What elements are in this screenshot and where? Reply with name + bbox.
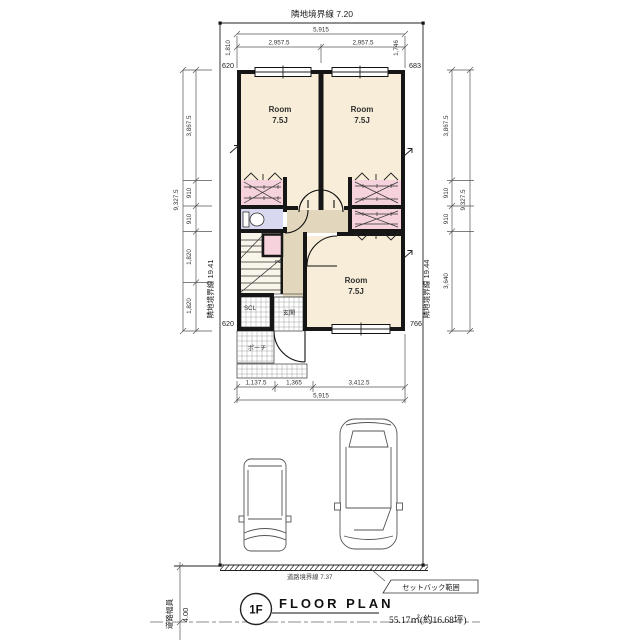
setback-label: セットバック範囲 [402,583,460,592]
dim-bottom-seg3: 3,412.5 [348,380,370,387]
porch-label: ポーチ [248,344,267,352]
road-boundary: 道路境界線 7.37 セットバック範囲 [174,565,478,593]
floor-tag: 1F [249,605,262,617]
dim-right-seg4: 3,640 [443,273,450,289]
toilet-fixture [243,212,264,227]
dim-right-seg1: 3,867.5 [443,115,450,137]
title-block: 1F FLOOR PLAN 55.17㎡(約16.68坪) [241,594,467,627]
dim-top-left-inset: 1,810 [225,40,232,56]
dim-right-total: 9,327.5 [460,189,467,211]
room2-name: Room [351,105,374,114]
entrance-label: 玄関 [283,309,295,317]
dim-bottom-seg1: 1,137.5 [245,380,267,387]
dimensions-left: 9,327.5 3,867.5 910 910 1,820 1,820 620 [173,67,234,334]
dim-top-right-inset: 1,746 [393,40,400,56]
window-room2 [332,66,388,79]
dim-left-seg1: 3,867.5 [186,115,193,137]
dim-top-total: 5,915 [313,27,329,34]
room3-name: Room [345,276,368,285]
pipe-space-area [263,235,282,257]
room2-size: 7.5J [354,116,370,125]
floor-plan-drawing: 隣地境界線 7.20 隣地境界線 19.41 隣地境界線 19.44 5,915… [0,0,640,640]
road-width-value: 4.00 [181,608,190,623]
room1-name: Room [269,105,292,114]
boundary-top-label: 隣地境界線 7.20 [291,8,353,19]
pipe-space-label: PS [275,259,281,264]
car-small [239,459,291,551]
dim-left-seg3: 910 [186,213,193,224]
dim-top-right-half: 2,957.5 [352,40,374,47]
dimensions-right: 3,867.5 910 910 3,640 9,327.5 766 [410,67,474,334]
floor-plan-page: 隣地境界線 7.20 隣地境界線 19.41 隣地境界線 19.44 5,915… [0,0,640,640]
dim-left-seg2: 910 [186,187,193,198]
window-room1 [255,66,311,79]
dim-offset-620-top: 620 [222,61,234,70]
plan-area-value: 55.17㎡(約16.68坪) [389,614,467,626]
road-width-label: 道路幅員 [164,598,174,629]
dim-left-seg4: 1,820 [186,249,193,265]
dim-bottom-total: 5,915 [313,393,329,400]
corridor-area [283,233,303,297]
boundary-right-label: 隣地境界線 19.44 [421,259,431,318]
window-room3 [332,323,390,336]
plan-title: FLOOR PLAN [279,596,394,611]
dim-right-seg2: 910 [443,187,450,198]
boundary-left-label: 隣地境界線 19.41 [205,259,215,318]
dim-right-seg3: 910 [443,213,450,224]
dim-top-left-half: 2,957.5 [268,40,290,47]
road-boundary-label: 道路境界線 7.37 [287,572,333,581]
car-large [335,419,403,549]
dim-left-total: 9,327.5 [173,189,180,211]
dimensions-top: 5,915 2,957.5 2,957.5 1,810 1,746 620 68… [222,27,421,71]
dim-offset-620-bottom: 620 [222,319,234,328]
room1-size: 7.5J [272,116,288,125]
room3-size: 7.5J [348,287,364,296]
dim-offset-766-bottom: 766 [410,319,422,328]
dim-left-seg5: 1,820 [186,298,193,314]
dim-offset-683-top: 683 [409,61,421,70]
shoe-closet-label: SCL [244,305,257,312]
dim-bottom-seg2: 1,365 [286,380,302,387]
